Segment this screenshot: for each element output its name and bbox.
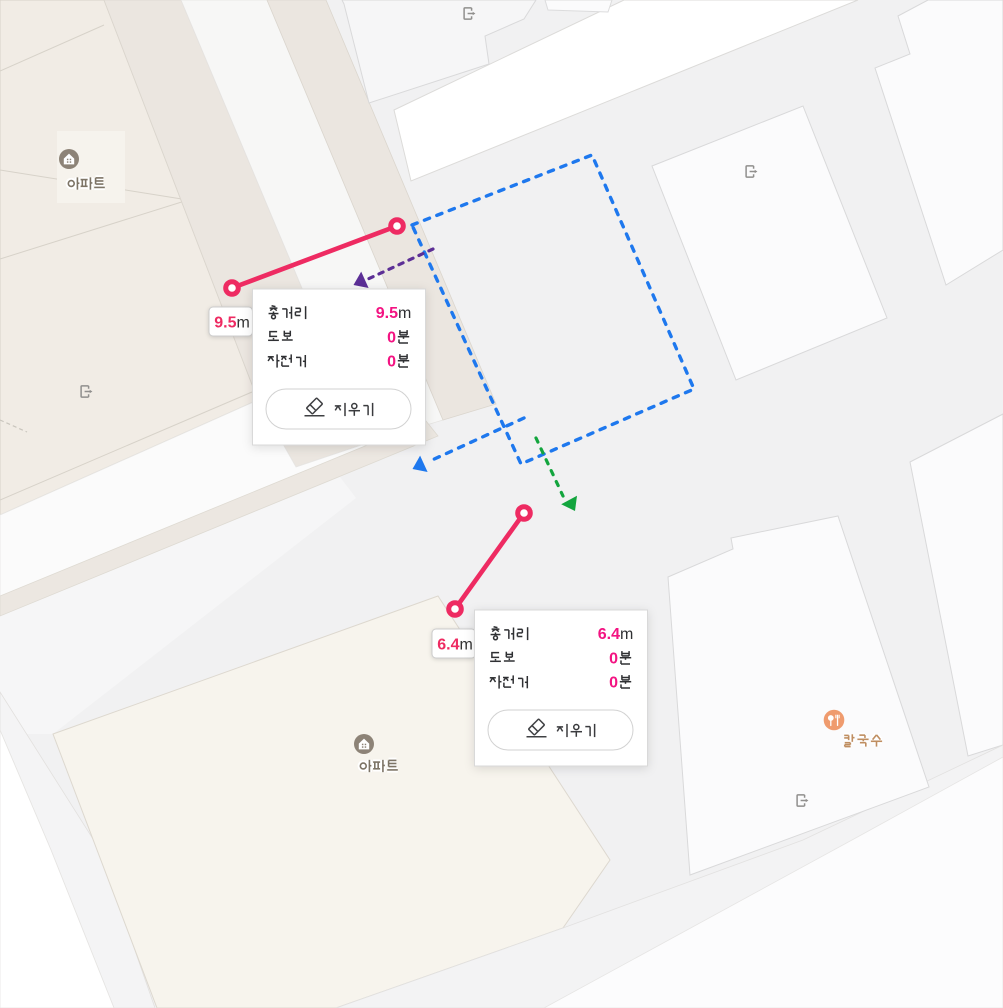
svg-text:6.4: 6.4 bbox=[598, 626, 620, 643]
svg-text:m: m bbox=[620, 626, 633, 643]
svg-text:9.5: 9.5 bbox=[376, 305, 398, 322]
svg-text:0: 0 bbox=[387, 354, 396, 371]
svg-text:0: 0 bbox=[609, 651, 618, 668]
svg-text:0: 0 bbox=[609, 675, 618, 692]
svg-text:m: m bbox=[237, 315, 250, 332]
svg-text:6.4: 6.4 bbox=[437, 637, 459, 654]
svg-text:0: 0 bbox=[387, 330, 396, 347]
svg-text:9.5: 9.5 bbox=[214, 315, 236, 332]
svg-text:m: m bbox=[398, 305, 411, 322]
svg-text:m: m bbox=[460, 637, 473, 654]
